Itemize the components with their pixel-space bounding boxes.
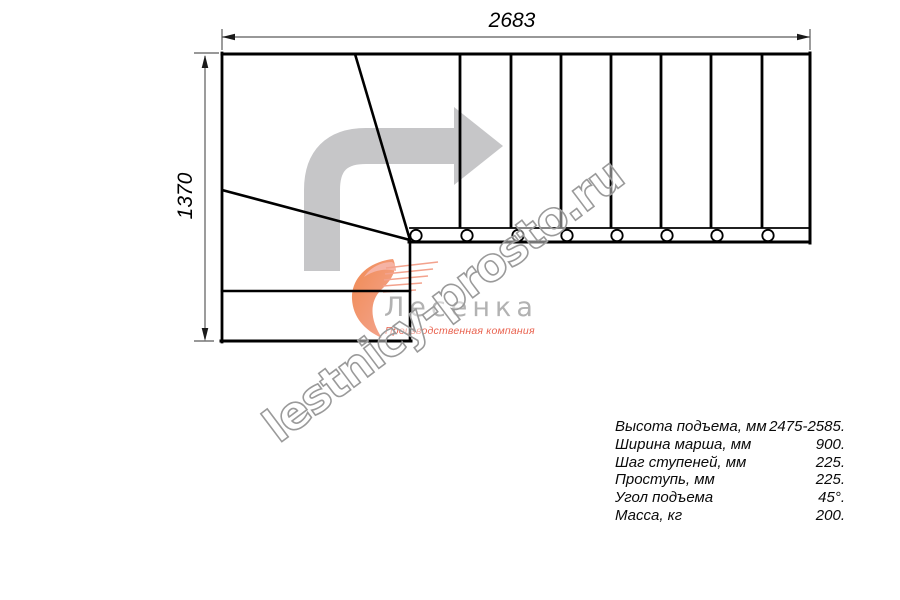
spec-row: Шаг ступеней, мм 225. bbox=[615, 454, 845, 472]
spec-label: Шаг ступеней, мм bbox=[615, 454, 816, 472]
spec-row: Проступь, мм 225. bbox=[615, 471, 845, 489]
spec-value: 225. bbox=[816, 454, 845, 472]
stair-plan-page: Лесенка Производственная компания bbox=[0, 0, 900, 600]
spec-label: Масса, кг bbox=[615, 507, 816, 525]
spec-label: Высота подъема, мм bbox=[615, 418, 769, 436]
spec-value: 45°. bbox=[818, 489, 845, 507]
spec-row: Угол подъема 45°. bbox=[615, 489, 845, 507]
dimension-arrowheads bbox=[202, 34, 810, 341]
spec-row: Масса, кг 200. bbox=[615, 507, 845, 525]
dimension-width-label: 2683 bbox=[472, 9, 552, 33]
spec-row: Высота подъема, мм 2475-2585. bbox=[615, 418, 845, 436]
spec-table: Высота подъема, мм 2475-2585. Ширина мар… bbox=[615, 418, 845, 525]
spec-value: 900. bbox=[816, 436, 845, 454]
spec-value: 200. bbox=[816, 507, 845, 525]
spec-value: 225. bbox=[816, 471, 845, 489]
dimension-height-label: 1370 bbox=[174, 156, 198, 236]
spec-label: Ширина марша, мм bbox=[615, 436, 816, 454]
spec-row: Ширина марша, мм 900. bbox=[615, 436, 845, 454]
baluster-markers bbox=[410, 230, 773, 241]
dimension-lines bbox=[194, 29, 810, 341]
spec-label: Угол подъема bbox=[615, 489, 818, 507]
spec-label: Проступь, мм bbox=[615, 471, 816, 489]
spec-value: 2475-2585. bbox=[769, 418, 845, 436]
